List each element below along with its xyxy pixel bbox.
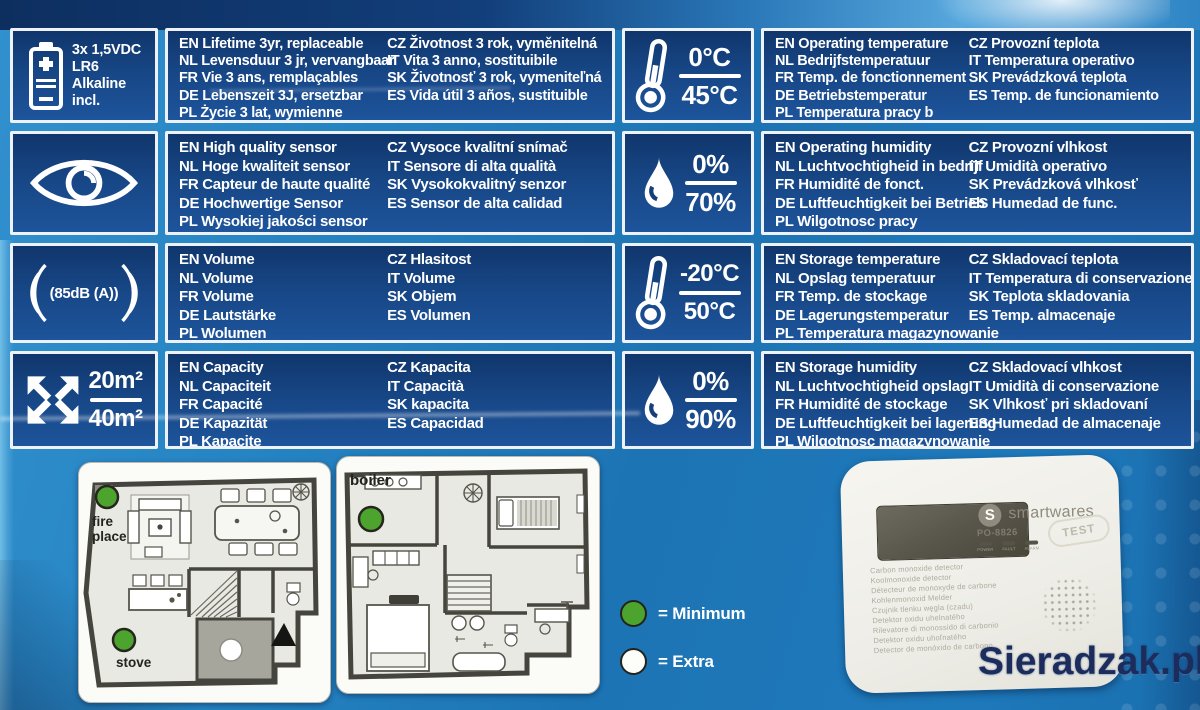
lang-column: CZ Kapacita IT Capacità SK kapacita ES C… xyxy=(387,359,608,444)
spec-line: EN Capacity xyxy=(179,359,387,378)
thermometer-icon xyxy=(630,35,677,116)
spec-line: NL Hoge kwaliteit sensor xyxy=(179,158,387,177)
spec-table: 3x 1,5VDC LR6 Alkaline incl. EN Lifetime… xyxy=(10,28,1194,457)
spec-line: DE Betriebstemperatur xyxy=(775,88,969,105)
operating-humidity-cell: 0% 70% xyxy=(622,131,754,235)
spec-line: PL Wysokiej jakości sensor xyxy=(179,213,387,232)
spec-line: ES Capacidad xyxy=(387,415,608,434)
led-fault: FAULT xyxy=(1002,541,1015,551)
led-bar-icon xyxy=(979,542,992,546)
lang-column: CZ Provozní teplota IT Temperatura opera… xyxy=(969,36,1187,118)
water-drop-icon xyxy=(640,372,678,428)
spec-line: EN Operating humidity xyxy=(775,139,969,158)
spec-line: IT Sensore di alta qualità xyxy=(387,158,608,177)
temp-min: -20°C xyxy=(680,260,739,288)
lang-column: CZ Hlasitost IT Volume SK Objem ES Volum… xyxy=(387,251,608,338)
spec-line: FR Capacité xyxy=(179,396,387,415)
stove-label: stove xyxy=(116,655,151,670)
led-label: ALARM xyxy=(1025,545,1040,550)
spec-row-battery-temp: 3x 1,5VDC LR6 Alkaline incl. EN Lifetime… xyxy=(10,28,1194,123)
sensor-cell xyxy=(10,131,158,235)
spec-line: DE Hochwertige Sensor xyxy=(179,195,387,214)
extra-detector-dot xyxy=(220,639,242,661)
boiler-label: boiler xyxy=(350,473,391,488)
spec-line: NL Capaciteit xyxy=(179,378,387,397)
temp-max: 45°C xyxy=(681,81,737,109)
area-min: 20m² xyxy=(88,367,142,395)
spec-line: ES Humedad de func. xyxy=(969,195,1187,214)
lang-column: CZ Skladovací teplota IT Temperatura di … xyxy=(969,251,1187,338)
battery-icon xyxy=(27,41,65,111)
spec-line: NL Opslag temperatuur xyxy=(775,270,969,289)
temp-max: 50°C xyxy=(684,298,736,326)
thermometer-icon xyxy=(630,253,677,334)
spec-line: FR Temp. de stockage xyxy=(775,288,969,307)
spec-line: ES Volumen xyxy=(387,307,608,326)
detector-legend: = Minimum = Extra xyxy=(620,600,745,675)
spec-line: SK Životnosť 3 rok, vymeniteľná xyxy=(387,70,608,87)
lang-column: EN Lifetime 3yr, replaceable NL Levensdu… xyxy=(179,36,387,118)
spec-line: PL Temperatura magazynowanie xyxy=(775,325,969,343)
spec-line: PL Wilgotnosc magazynowanie xyxy=(775,433,969,449)
fireplace-label: fire place xyxy=(92,514,140,544)
humidity-min: 0% xyxy=(692,367,729,395)
spec-line: CZ Skladovací vlhkost xyxy=(969,359,1187,378)
spec-line: IT Volume xyxy=(387,270,608,289)
lang-column: EN Capacity NL Capaciteit FR Capacité DE… xyxy=(179,359,387,444)
temperature-range: -20°C 50°C xyxy=(679,260,741,326)
spec-line: DE Lautstärke xyxy=(179,307,387,326)
floorplan-upper-floor: boiler xyxy=(336,456,600,694)
coverage-range: 20m² 40m² xyxy=(88,367,142,433)
humidity-min: 0% xyxy=(692,150,729,178)
spec-row-capacity-storagehum: 20m² 40m² EN Capacity NL Capaciteit FR C… xyxy=(10,351,1194,449)
extra-dot-icon xyxy=(620,648,647,675)
storage-temperature-text-cell: EN Storage temperature NL Opslag tempera… xyxy=(761,243,1194,343)
sound-arcs-right-icon xyxy=(120,259,142,327)
spec-line: SK Prevádzková teplota xyxy=(969,70,1187,87)
spec-line: SK Vysokokvalitný senzor xyxy=(387,176,608,195)
spec-line: PL Wolumen xyxy=(179,325,387,343)
spec-row-sensor-humidity: EN High quality sensor NL Hoge kwaliteit… xyxy=(10,131,1194,235)
minimum-dot-icon xyxy=(620,600,647,627)
spec-line: EN Storage temperature xyxy=(775,251,969,270)
temperature-range: 0°C 45°C xyxy=(679,43,741,109)
minimum-detector-dot-boiler xyxy=(359,507,383,531)
divider xyxy=(90,398,142,402)
lang-column: EN Operating humidity NL Luchtvochtighei… xyxy=(775,139,969,230)
spec-line: CZ Provozní vlhkost xyxy=(969,139,1187,158)
battery-spec: incl. xyxy=(72,93,141,110)
spec-line: EN Operating temperature xyxy=(775,36,969,53)
sound-arcs-left-icon xyxy=(26,259,48,327)
spec-line: CZ Skladovací teplota xyxy=(969,251,1187,270)
divider xyxy=(679,291,741,295)
storage-humidity-text-cell: EN Storage humidity NL Luchtvochtigheid … xyxy=(761,351,1194,449)
floorplan2-drawing xyxy=(337,457,599,693)
battery-spec: 3x 1,5VDC xyxy=(72,42,141,59)
logo-letter: S xyxy=(985,507,995,524)
volume-text-cell: EN Volume NL Volume FR Volume DE Lautstä… xyxy=(165,243,615,343)
spec-line: NL Levensduur 3 jr, vervangbaar xyxy=(179,53,387,70)
lang-column: EN Storage temperature NL Opslag tempera… xyxy=(775,251,969,338)
speaker-grille-icon xyxy=(1039,575,1099,635)
spec-line: IT Umidità di conservazione xyxy=(969,378,1187,397)
spec-line: NL Bedrijfstemperatuur xyxy=(775,53,969,70)
spec-line: FR Vie 3 ans, remplaçables xyxy=(179,70,387,87)
spec-line: DE Luftfeuchtigkeit bei lagerung xyxy=(775,415,969,434)
spec-line: ES Temp. de funcionamiento xyxy=(969,88,1187,105)
spec-line: ES Sensor de alta calidad xyxy=(387,195,608,214)
lifetime-text-cell: EN Lifetime 3yr, replaceable NL Levensdu… xyxy=(165,28,615,123)
lang-column: CZ Vysoce kvalitní snímač IT Sensore di … xyxy=(387,139,608,230)
spec-row-volume-storagetemp: (85dB (A)) EN Volume NL Volume FR Volume… xyxy=(10,243,1194,343)
spec-line: FR Humidité de fonct. xyxy=(775,176,969,195)
humidity-max: 90% xyxy=(685,405,736,433)
spec-line: EN Volume xyxy=(179,251,387,270)
eye-icon xyxy=(28,147,140,219)
spec-line: IT Temperatura di conservazione xyxy=(969,270,1187,289)
spec-line: FR Humidité de stockage xyxy=(775,396,969,415)
led-bar-icon xyxy=(1002,541,1015,545)
divider xyxy=(685,181,737,185)
operating-humidity-text-cell: EN Operating humidity NL Luchtvochtighei… xyxy=(761,131,1194,235)
led-indicators: POWER FAULT ALARM xyxy=(977,540,1039,552)
lang-column: CZ Skladovací vlhkost IT Umidità di cons… xyxy=(969,359,1187,444)
spec-line: DE Luftfeuchtigkeit bei Betrieb xyxy=(775,195,969,214)
humidity-range: 0% 90% xyxy=(685,367,737,433)
led-alarm: ALARM xyxy=(1024,540,1039,550)
spec-line: IT Vita 3 anno, sostituibile xyxy=(387,53,608,70)
sound-waves-icon: (85dB (A)) xyxy=(26,259,143,327)
legend-item-minimum: = Minimum xyxy=(620,600,745,627)
spec-line: CZ Hlasitost xyxy=(387,251,608,270)
led-bar-icon xyxy=(1025,540,1038,544)
spec-line: PL Temperatura pracy b xyxy=(775,105,969,122)
spec-line: EN High quality sensor xyxy=(179,139,387,158)
battery-spec: Alkaline xyxy=(72,76,141,93)
divider xyxy=(685,398,737,402)
lang-column: CZ Životnost 3 rok, vyměnitelná IT Vita … xyxy=(387,36,608,118)
spec-line: NL Luchtvochtigheid in bedrijf xyxy=(775,158,969,177)
operating-temperature-cell: 0°C 45°C xyxy=(622,28,754,123)
model-number: PO-8826 xyxy=(977,527,1018,539)
legend-label: = Extra xyxy=(658,652,714,672)
humidity-max: 70% xyxy=(685,188,736,216)
spec-line: SK Prevádzková vlhkosť xyxy=(969,176,1187,195)
spec-line: SK Teplota skladovania xyxy=(969,288,1187,307)
spec-line: PL Kapacite xyxy=(179,433,387,449)
watermark: Sieradzak.pl xyxy=(978,640,1200,684)
lang-column: EN Storage humidity NL Luchtvochtigheid … xyxy=(775,359,969,444)
spec-line: IT Capacità xyxy=(387,378,608,397)
capacity-cell: 20m² 40m² xyxy=(10,351,158,449)
humidity-range: 0% 70% xyxy=(685,150,737,216)
minimum-detector-dot-fireplace xyxy=(96,486,118,508)
capacity-text-cell: EN Capacity NL Capaciteit FR Capacité DE… xyxy=(165,351,615,449)
spec-line: NL Volume xyxy=(179,270,387,289)
spec-line: FR Temp. de fonctionnement xyxy=(775,70,969,87)
spec-line: PL Życie 3 lat, wymienne xyxy=(179,105,387,122)
led-label: FAULT xyxy=(1002,546,1015,551)
spec-line: CZ Kapacita xyxy=(387,359,608,378)
lang-column: CZ Provozní vlhkost IT Umidità operativo… xyxy=(969,139,1187,230)
temp-min: 0°C xyxy=(688,43,730,71)
spec-line: SK Vlhkosť pri skladovaní xyxy=(969,396,1187,415)
test-button-label: TEST xyxy=(1061,522,1096,539)
spec-line: DE Lagerungstemperatur xyxy=(775,307,969,326)
spec-line: EN Lifetime 3yr, replaceable xyxy=(179,36,387,53)
spec-line: NL Luchtvochtigheid opslag xyxy=(775,378,969,397)
spec-line: ES Temp. almacenaje xyxy=(969,307,1187,326)
spec-line: ES Humedad de almacenaje xyxy=(969,415,1187,434)
spec-line: CZ Vysoce kvalitní snímač xyxy=(387,139,608,158)
battery-cell: 3x 1,5VDC LR6 Alkaline incl. xyxy=(10,28,158,123)
spec-line: CZ Provozní teplota xyxy=(969,36,1187,53)
spec-line: IT Temperatura operativo xyxy=(969,53,1187,70)
lang-column: EN Volume NL Volume FR Volume DE Lautstä… xyxy=(179,251,387,338)
spec-line: FR Capteur de haute qualité xyxy=(179,176,387,195)
legend-item-extra: = Extra xyxy=(620,648,745,675)
spec-line: PL Wilgotnosc pracy xyxy=(775,213,969,232)
led-label: POWER xyxy=(977,547,993,552)
storage-temperature-cell: -20°C 50°C xyxy=(622,243,754,343)
water-drop-icon xyxy=(640,155,678,211)
storage-humidity-cell: 0% 90% xyxy=(622,351,754,449)
spec-line: EN Storage humidity xyxy=(775,359,969,378)
battery-spec: LR6 xyxy=(72,59,141,76)
operating-temperature-text-cell: EN Operating temperature NL Bedrijfstemp… xyxy=(761,28,1194,123)
sensor-text-cell: EN High quality sensor NL Hoge kwaliteit… xyxy=(165,131,615,235)
spec-line: CZ Životnost 3 rok, vyměnitelná xyxy=(387,36,608,53)
spec-line: FR Volume xyxy=(179,288,387,307)
spec-line: SK Objem xyxy=(387,288,608,307)
minimum-detector-dot-stove xyxy=(113,629,135,651)
legend-label: = Minimum xyxy=(658,604,745,624)
spec-line: IT Umidità operativo xyxy=(969,158,1187,177)
volume-cell: (85dB (A)) xyxy=(10,243,158,343)
battery-caption: 3x 1,5VDC LR6 Alkaline incl. xyxy=(72,42,141,110)
lang-column: EN Operating temperature NL Bedrijfstemp… xyxy=(775,36,969,118)
led-power: POWER xyxy=(977,542,993,552)
decibel-label: (85dB (A)) xyxy=(50,285,119,302)
divider xyxy=(679,74,741,78)
floorplan-ground-floor: fire place stove xyxy=(78,462,331,703)
lang-column: EN High quality sensor NL Hoge kwaliteit… xyxy=(179,139,387,230)
